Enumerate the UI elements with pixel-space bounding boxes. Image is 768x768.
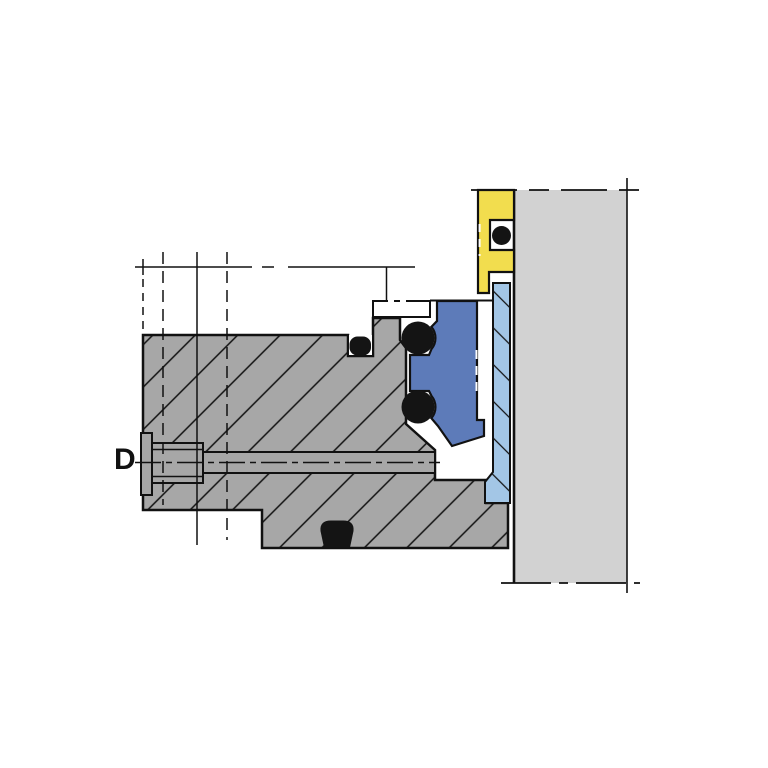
clamp-oring bbox=[492, 226, 511, 245]
seal-cross-section-diagram: D bbox=[0, 0, 768, 768]
dimension-label-d: D bbox=[114, 443, 136, 476]
bottom-oring bbox=[320, 521, 353, 548]
oring-upper bbox=[402, 322, 435, 355]
diagram-canvas: D bbox=[0, 0, 768, 768]
oring-lower bbox=[402, 391, 435, 424]
bolt-washer-cap bbox=[141, 433, 152, 495]
mounting-wall bbox=[514, 190, 627, 583]
top-small-oring bbox=[350, 337, 372, 356]
retaining-ring bbox=[373, 301, 430, 317]
seat-plate-hatch bbox=[485, 283, 510, 503]
